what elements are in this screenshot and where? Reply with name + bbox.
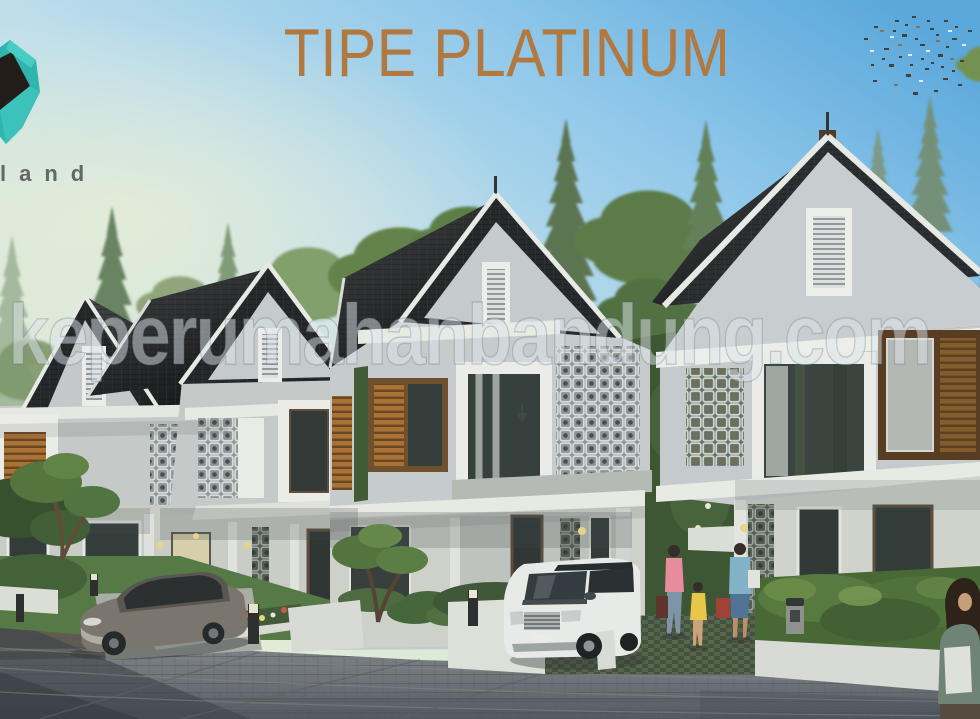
svg-text:keperumahanbandung.com: keperumahanbandung.com [8, 287, 930, 382]
svg-text:TIPE PLATINUM: TIPE PLATINUM [284, 16, 730, 91]
svg-text:land: land [0, 161, 97, 186]
